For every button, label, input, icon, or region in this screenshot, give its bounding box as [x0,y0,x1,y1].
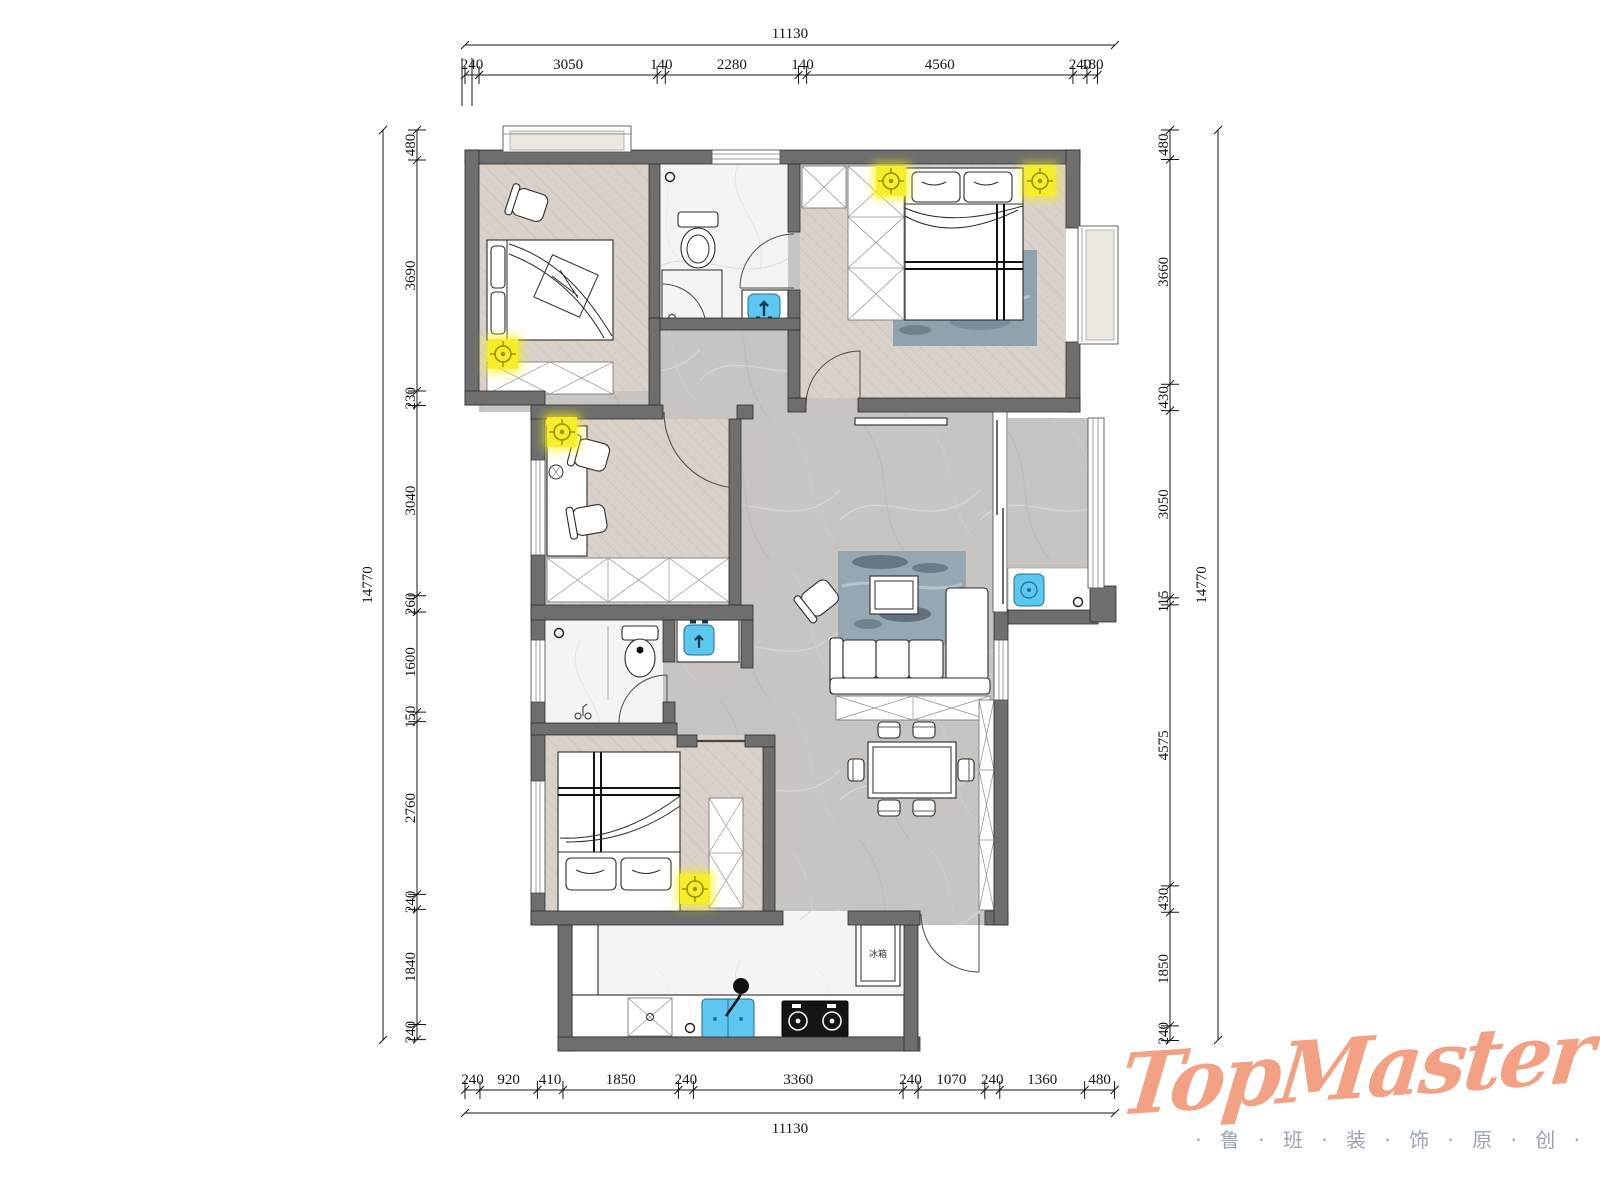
dim-label: 920 [497,1072,520,1088]
bedroom1-bay-window [503,126,631,152]
dim-label: 240 [461,57,484,73]
bathroom2-window [531,640,545,702]
dim-label: 1850 [606,1072,636,1088]
bathroom1-window [712,150,780,164]
sofa-back [830,678,990,694]
dim-label: 240 [403,1021,419,1044]
dim-label: 2760 [403,793,419,823]
dim-label: 3050 [553,57,583,73]
dimension-left-chain: 48036902303040260160015027602401840240 [403,126,426,1044]
bedroom1-bed [487,240,613,340]
dim-label: 2280 [717,57,747,73]
dining-window [994,640,1008,700]
bedroom3-bed [558,752,680,914]
dim-label: 115 [1156,590,1172,612]
dim-total-right: 14770 [1194,566,1210,604]
bedroom3-window [531,781,545,893]
dim-label: 3660 [1156,257,1172,287]
dim-label: 240 [899,1072,922,1088]
light-master-right [1022,163,1058,199]
dim-label: 480 [403,134,419,157]
dim-label: 480 [1156,133,1172,156]
floor-plan-page: 冰箱 [0,0,1600,1200]
dim-total-left: 14770 [360,566,376,604]
dim-label: 260 [403,593,419,616]
light-study [544,414,580,450]
dim-label: 140 [791,57,814,73]
dim-label: 240 [675,1072,698,1088]
study-window [531,460,545,555]
dimension-right-chain: 4803660430305011545754301850240 [1156,126,1179,1045]
dimension-top-total: 11130 [461,26,1119,49]
logo: TopMaster · 鲁 · 班 · 装 · 饰 · 原 · 创 · [972,1032,1592,1153]
dim-label: 3050 [1156,489,1172,519]
dim-label: 140 [650,57,673,73]
dim-label: 4575 [1156,730,1172,760]
dim-label: 240 [461,1072,484,1088]
dim-label: 1850 [1156,954,1172,984]
fridge-label: 冰箱 [869,948,887,960]
dim-label: 410 [539,1072,562,1088]
dim-total-bottom: 11130 [772,1121,808,1137]
dim-label: 1840 [403,952,419,982]
dim-label: 430 [1156,386,1172,409]
light-master-left [873,163,909,199]
dim-label: 1070 [936,1072,966,1088]
dim-label: 180 [1081,57,1104,73]
dimension-left-total: 14770 [360,126,387,1044]
sofa-chaise [946,588,988,680]
balcony-sliding-door [993,412,1007,612]
coffee-table [870,576,918,614]
dim-label: 230 [403,387,419,410]
dining-table [868,742,956,798]
basin-nook [677,620,739,662]
light-bedroom3 [677,871,713,907]
dim-label: 3360 [783,1072,813,1088]
dim-label: 3040 [403,486,419,516]
dimension-top-chain: 240305014022801404560240180 [461,57,1104,84]
tv-stand [855,418,947,425]
dim-label: 240 [403,891,419,914]
bedroom3-wardrobe [709,798,743,908]
dim-label: 150 [403,706,419,729]
dim-label: 1600 [403,647,419,677]
balcony-window [1088,418,1104,588]
stove [782,1001,848,1037]
dim-total-top: 11130 [772,26,808,42]
light-bedroom1 [485,336,521,372]
dim-label: 430 [1156,888,1172,911]
master-bay-window [1078,226,1118,344]
dim-label: 3690 [403,261,419,291]
dim-label: 4560 [925,57,955,73]
dimension-right-total: 14770 [1194,126,1222,1044]
